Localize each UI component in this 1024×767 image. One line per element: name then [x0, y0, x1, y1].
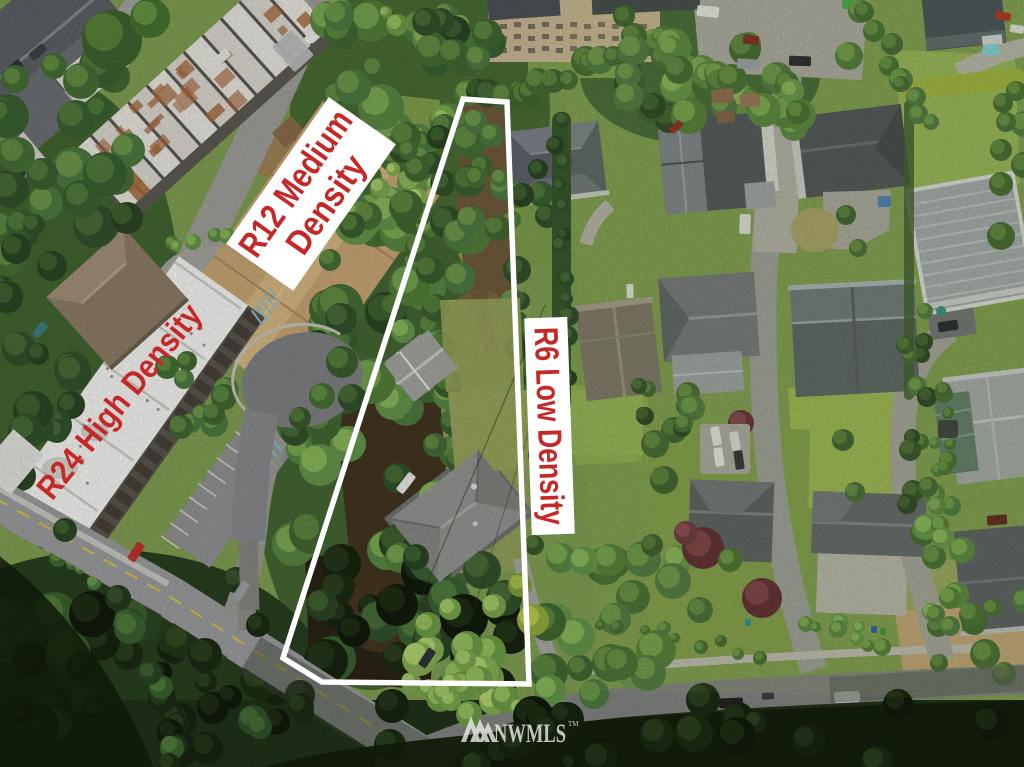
svg-text:NWMLS: NWMLS [494, 719, 566, 748]
svg-text:TM: TM [568, 720, 579, 728]
svg-text:R6 Low Density: R6 Low Density [527, 326, 571, 525]
